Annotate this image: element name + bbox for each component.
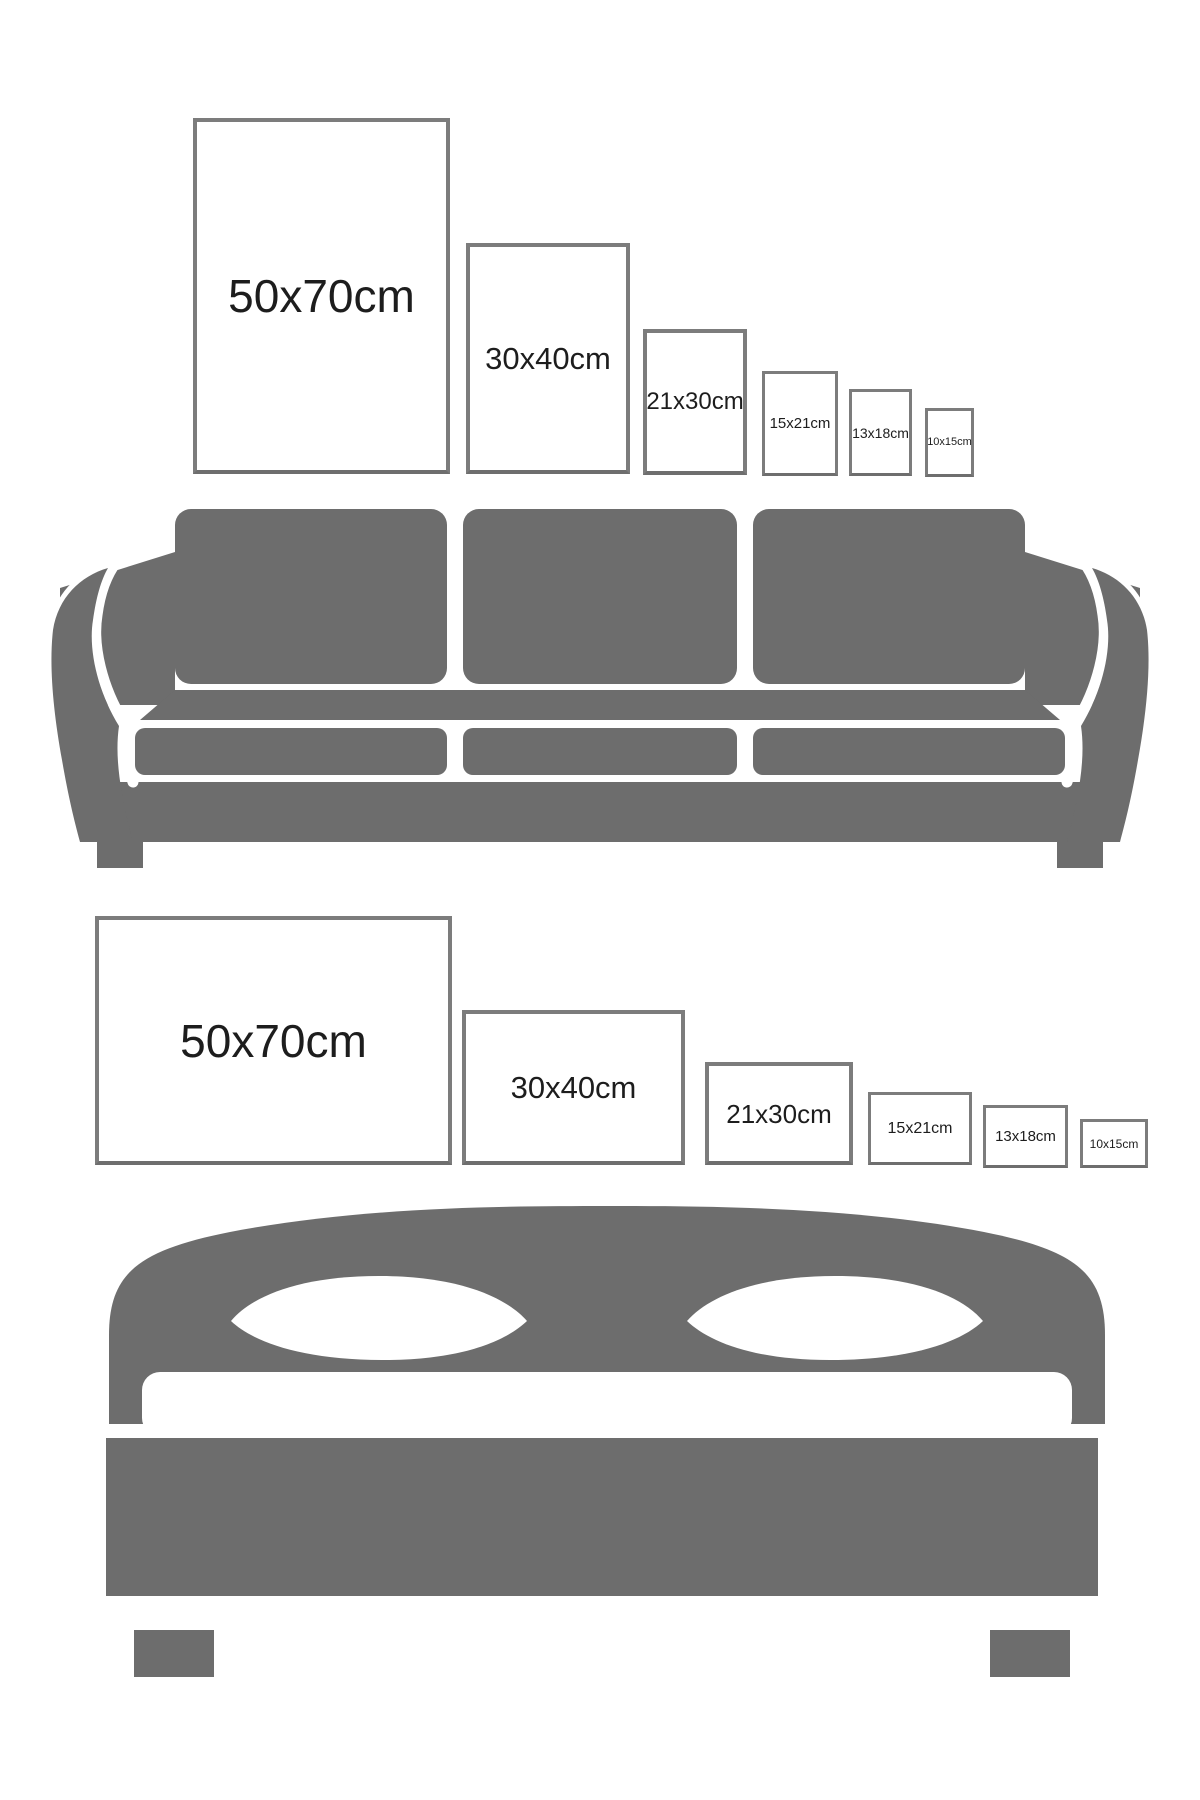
frame-portrait-15x21: 15x21cm — [762, 371, 838, 476]
frame-label: 21x30cm — [646, 390, 743, 414]
frame-portrait-50x70: 50x70cm — [193, 118, 450, 474]
sofa-foot-right — [1057, 842, 1103, 868]
frame-landscape-30x40: 30x40cm — [462, 1010, 685, 1165]
frame-label: 50x70cm — [180, 1018, 367, 1064]
size-guide-infographic: 50x70cm 30x40cm 21x30cm 15x21cm 13x18cm … — [0, 0, 1200, 1800]
frame-label: 15x21cm — [888, 1121, 953, 1137]
frame-label: 21x30cm — [726, 1101, 832, 1127]
bed-foot-right — [990, 1630, 1070, 1677]
sofa-seat-cushion — [753, 728, 1065, 775]
frame-landscape-21x30: 21x30cm — [705, 1062, 853, 1165]
bed-icon — [0, 1190, 1200, 1690]
frame-label: 30x40cm — [485, 343, 611, 374]
frame-portrait-13x18: 13x18cm — [849, 389, 912, 476]
frame-landscape-10x15: 10x15cm — [1080, 1119, 1148, 1168]
bed-base — [106, 1438, 1098, 1596]
frame-label: 50x70cm — [228, 273, 415, 319]
frame-portrait-10x15: 10x15cm — [925, 408, 974, 477]
frame-label: 30x40cm — [511, 1072, 637, 1103]
frame-label: 15x21cm — [770, 416, 831, 431]
sofa-back-cushion — [175, 509, 447, 684]
frame-landscape-50x70: 50x70cm — [95, 916, 452, 1165]
sofa-back-cushion — [463, 509, 737, 684]
sofa-base-rail — [120, 782, 1080, 842]
sofa-icon — [0, 480, 1200, 880]
frame-label: 10x15cm — [1090, 1138, 1139, 1150]
frame-label: 10x15cm — [927, 437, 972, 448]
frame-portrait-30x40: 30x40cm — [466, 243, 630, 474]
frame-landscape-15x21: 15x21cm — [868, 1092, 972, 1165]
frame-portrait-21x30: 21x30cm — [643, 329, 747, 475]
sofa-seat-deck — [140, 690, 1060, 720]
sofa-seat-cushion — [135, 728, 447, 775]
bed-mattress-line — [142, 1372, 1072, 1436]
sofa-seat-cushion — [463, 728, 737, 775]
frame-label: 13x18cm — [852, 426, 909, 440]
sofa-back-cushion — [753, 509, 1025, 684]
frame-landscape-13x18: 13x18cm — [983, 1105, 1068, 1168]
sofa-foot-left — [97, 842, 143, 868]
frame-label: 13x18cm — [995, 1129, 1056, 1144]
bed-foot-left — [134, 1630, 214, 1677]
